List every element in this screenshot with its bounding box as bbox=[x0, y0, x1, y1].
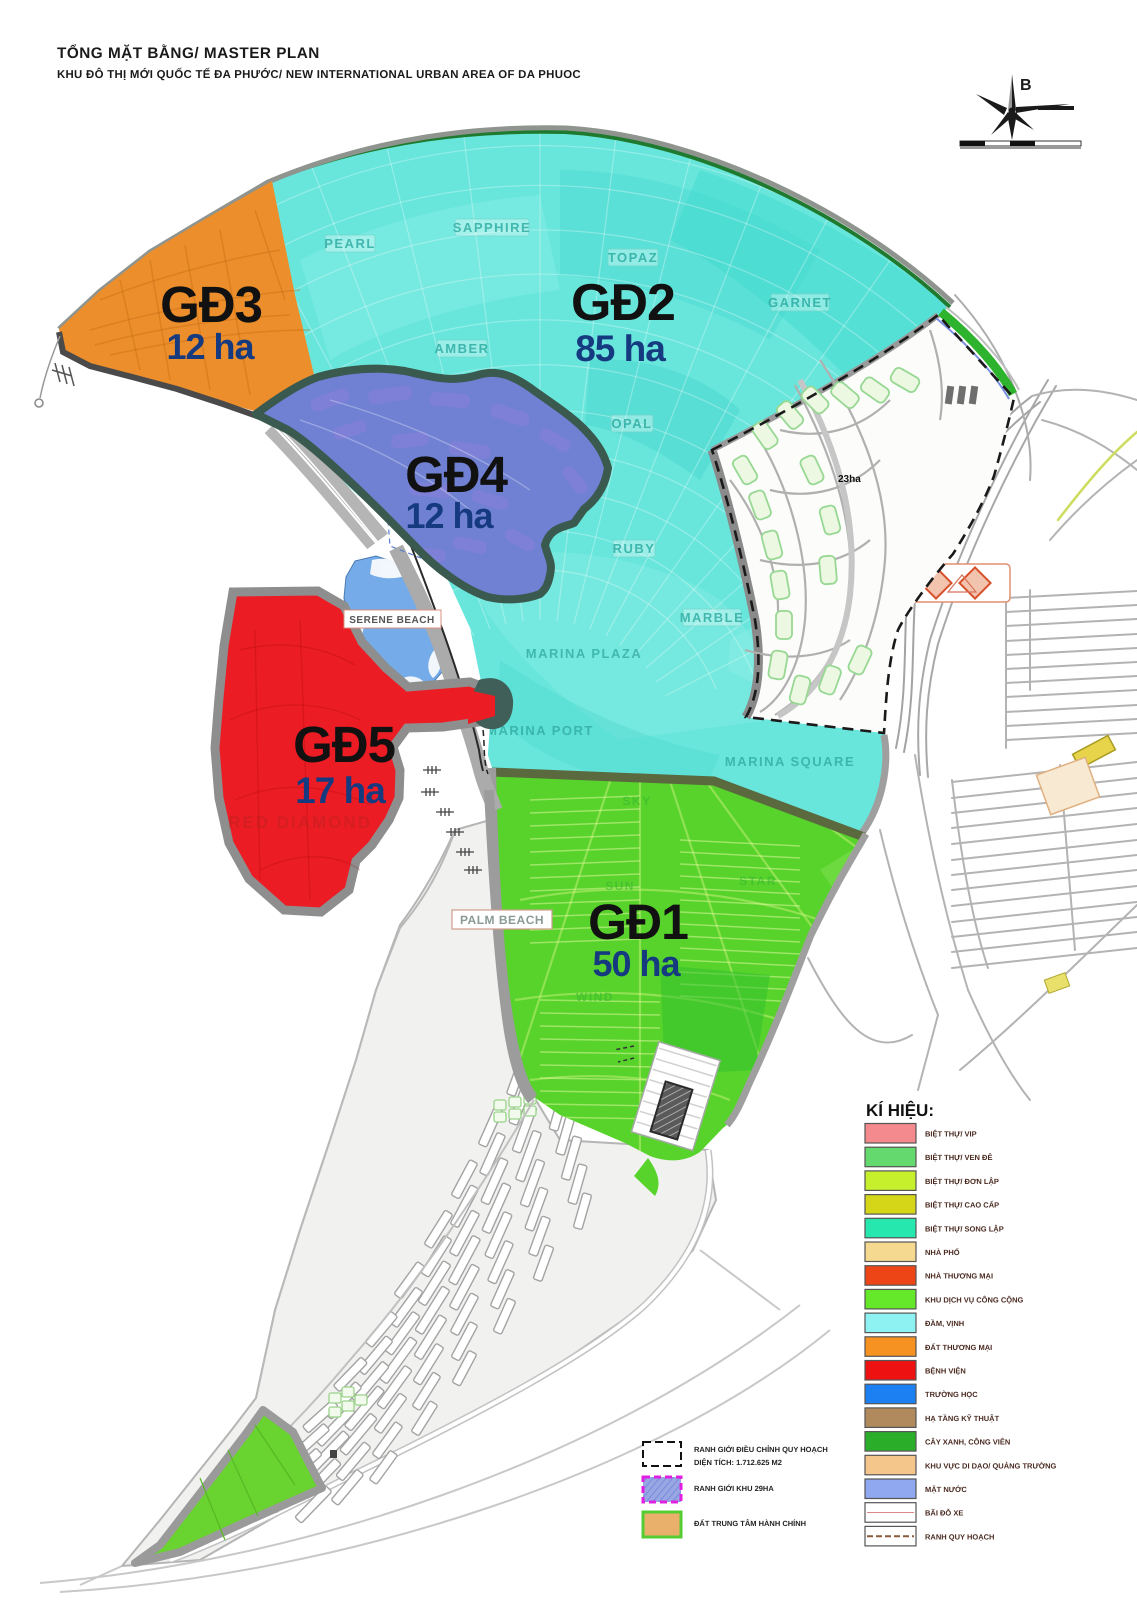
svg-text:85 ha: 85 ha bbox=[575, 328, 666, 369]
svg-text:CÂY XANH, CÔNG VIÊN: CÂY XANH, CÔNG VIÊN bbox=[925, 1438, 1010, 1447]
svg-text:12 ha: 12 ha bbox=[166, 326, 255, 367]
svg-text:GĐ3: GĐ3 bbox=[160, 276, 262, 333]
svg-text:AMBER: AMBER bbox=[434, 341, 489, 356]
svg-text:RANH GIỚI KHU 29HA: RANH GIỚI KHU 29HA bbox=[694, 1484, 774, 1493]
svg-text:12 ha: 12 ha bbox=[405, 495, 494, 536]
svg-text:GARNET: GARNET bbox=[768, 295, 832, 310]
svg-text:KHU DỊCH VỤ CÔNG CỘNG: KHU DỊCH VỤ CÔNG CỘNG bbox=[925, 1295, 1024, 1304]
svg-text:B: B bbox=[1020, 77, 1032, 94]
svg-text:NHÀ THƯƠNG MẠI: NHÀ THƯƠNG MẠI bbox=[925, 1272, 993, 1281]
svg-text:BÃI ĐỖ XE: BÃI ĐỖ XE bbox=[925, 1509, 963, 1518]
svg-text:GĐ2: GĐ2 bbox=[571, 274, 675, 332]
svg-text:BIỆT THỰ/ SONG LẬP: BIỆT THỰ/ SONG LẬP bbox=[925, 1224, 1004, 1233]
svg-text:STAR: STAR bbox=[739, 874, 777, 888]
svg-text:MARINA PLAZA: MARINA PLAZA bbox=[526, 646, 642, 661]
svg-text:RANH GIỚI ĐIỀU CHỈNH QUY HOẠCH: RANH GIỚI ĐIỀU CHỈNH QUY HOẠCH bbox=[694, 1445, 828, 1454]
svg-text:RUBY: RUBY bbox=[613, 541, 656, 556]
svg-text:WIND: WIND bbox=[576, 990, 614, 1004]
svg-text:BỆNH VIỆN: BỆNH VIỆN bbox=[925, 1367, 966, 1376]
svg-text:HẠ TẦNG KỸ THUẬT: HẠ TẦNG KỸ THUẬT bbox=[925, 1414, 1000, 1423]
svg-text:ĐẤT THƯƠNG MẠI: ĐẤT THƯƠNG MẠI bbox=[925, 1343, 992, 1352]
svg-text:17 ha: 17 ha bbox=[295, 770, 386, 811]
svg-text:SUN: SUN bbox=[605, 879, 635, 893]
svg-text:KÍ HIỆU:: KÍ HIỆU: bbox=[866, 1100, 934, 1120]
svg-text:ĐẤT TRUNG TÂM HÀNH CHÍNH: ĐẤT TRUNG TÂM HÀNH CHÍNH bbox=[694, 1519, 806, 1528]
svg-text:BIỆT THỰ/ VIP: BIỆT THỰ/ VIP bbox=[925, 1130, 977, 1139]
svg-text:50 ha: 50 ha bbox=[592, 943, 681, 984]
svg-text:TOPAZ: TOPAZ bbox=[608, 250, 658, 265]
svg-text:KHU VỰC DI DẠO/ QUẢNG TRƯỜNG: KHU VỰC DI DẠO/ QUẢNG TRƯỜNG bbox=[925, 1461, 1057, 1470]
svg-text:PALM BEACH: PALM BEACH bbox=[460, 913, 544, 927]
svg-text:KHU ĐÔ THỊ MỚI QUỐC TẾ ĐA PHƯỚ: KHU ĐÔ THỊ MỚI QUỐC TẾ ĐA PHƯỚC/ NEW INT… bbox=[57, 67, 581, 81]
svg-text:MẶT NƯỚC: MẶT NƯỚC bbox=[925, 1485, 967, 1494]
svg-text:ĐẦM, VỊNH: ĐẦM, VỊNH bbox=[925, 1319, 964, 1328]
svg-text:OPAL: OPAL bbox=[611, 416, 652, 431]
svg-text:RANH QUY HOẠCH: RANH QUY HOẠCH bbox=[925, 1532, 994, 1541]
svg-text:GĐ1: GĐ1 bbox=[588, 894, 688, 950]
svg-text:BIỆT THỰ/ VEN ĐÊ: BIỆT THỰ/ VEN ĐÊ bbox=[925, 1153, 992, 1162]
svg-text:23ha: 23ha bbox=[838, 474, 861, 485]
svg-text:SERENE BEACH: SERENE BEACH bbox=[349, 615, 434, 626]
svg-text:RED DIAMOND: RED DIAMOND bbox=[228, 813, 372, 832]
svg-text:DIỆN TÍCH: 1.712.625 M2: DIỆN TÍCH: 1.712.625 M2 bbox=[694, 1458, 782, 1467]
svg-text:PEARL: PEARL bbox=[324, 236, 376, 251]
svg-text:BIỆT THỰ/ ĐƠN LẬP: BIỆT THỰ/ ĐƠN LẬP bbox=[925, 1177, 999, 1186]
svg-text:TRƯỜNG HỌC: TRƯỜNG HỌC bbox=[925, 1390, 978, 1399]
svg-text:GĐ5: GĐ5 bbox=[293, 716, 395, 773]
svg-text:MARINA SQUARE: MARINA SQUARE bbox=[725, 754, 855, 769]
svg-text:NHÀ PHỐ: NHÀ PHỐ bbox=[925, 1248, 960, 1257]
svg-text:SKY: SKY bbox=[622, 794, 651, 808]
svg-text:SAPPHIRE: SAPPHIRE bbox=[453, 220, 531, 235]
svg-text:BIỆT THỰ/ CAO CẤP: BIỆT THỰ/ CAO CẤP bbox=[925, 1201, 999, 1210]
svg-text:TỔNG MẶT BẰNG/ MASTER PLAN: TỔNG MẶT BẰNG/ MASTER PLAN bbox=[57, 44, 320, 62]
svg-text:MARBLE: MARBLE bbox=[680, 610, 745, 625]
